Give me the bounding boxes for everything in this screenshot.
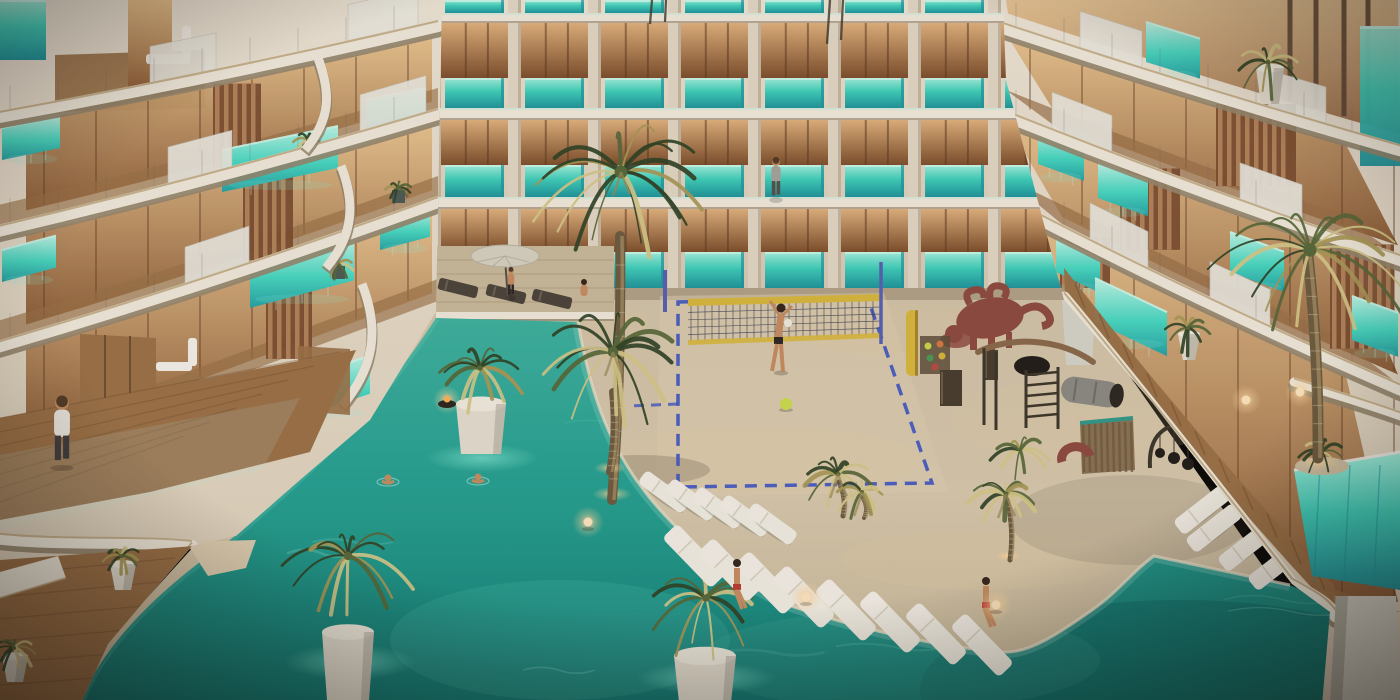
atmosphere: [0, 0, 1400, 700]
vignette: [0, 0, 1400, 700]
resort-courtyard-render: [0, 0, 1400, 700]
scene-canvas: [0, 0, 1400, 700]
